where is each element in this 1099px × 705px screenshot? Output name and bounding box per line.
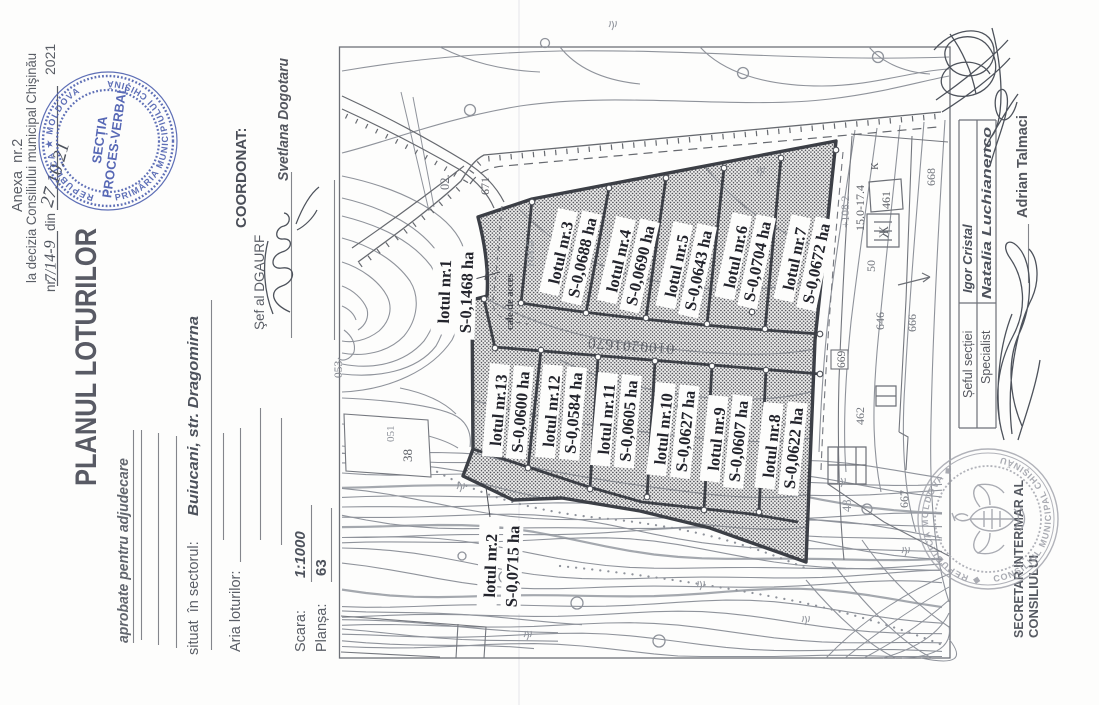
svg-text:Aria loturilor:: Aria loturilor: (228, 571, 244, 652)
svg-text:669: 669 (836, 351, 848, 369)
svg-text:671: 671 (478, 177, 492, 195)
svg-text:din: din (43, 213, 58, 231)
svg-text:К: К (869, 162, 881, 170)
svg-text:Specialist: Specialist (979, 330, 993, 384)
svg-text:02.: 02. (438, 174, 452, 190)
svg-text:667: 667 (897, 490, 911, 508)
svg-text:PLANUL LOTURILOR: PLANUL LOTURILOR (70, 228, 103, 486)
svg-text:053: 053 (333, 361, 345, 379)
svg-text:Igor Cristal: Igor Cristal (960, 224, 975, 293)
svg-text:S-0,0715 ha: S-0,0715 ha (502, 525, 524, 607)
svg-text:situat în sectorul:: situat în sectorul: (186, 541, 202, 655)
svg-text:38: 38 (400, 449, 415, 462)
svg-text:S-0,1468 ha: S-0,1468 ha (456, 251, 478, 333)
svg-text:461: 461 (879, 191, 893, 209)
svg-text:+108.2: +108.2 (840, 195, 852, 228)
svg-text:Adrian Talmaci: Adrian Talmaci (1015, 115, 1031, 218)
svg-text:668: 668 (924, 168, 938, 186)
svg-text:lotul nr.2: lotul nr.2 (480, 534, 501, 598)
svg-text:15.0-17.4: 15.0-17.4 (853, 185, 867, 231)
svg-text:104.6: 104.6 (523, 241, 537, 268)
svg-text:la decizia Consiliului municip: la decizia Consiliului municipal Chişină… (23, 53, 39, 283)
svg-text:63: 63 (313, 559, 330, 576)
svg-text:cale de acces: cale de acces (505, 273, 516, 330)
svg-text:Ж: Ж (876, 226, 891, 238)
svg-text:051: 051 (385, 426, 397, 443)
svg-text:Șeful secției: Șeful secției (961, 331, 975, 398)
svg-text:aprobate pentru adjudecare: aprobate pentru adjudecare (116, 458, 132, 643)
svg-text:Buiucani, str. Dragomirna: Buiucani, str. Dragomirna (185, 316, 202, 516)
svg-text:Scara:: Scara: (293, 610, 309, 652)
svg-text:lotul nr.1: lotul nr.1 (434, 260, 455, 324)
svg-text:Natalia Luchianenco: Natalia Luchianenco (980, 126, 994, 299)
svg-text:646: 646 (873, 312, 887, 330)
svg-text:50: 50 (864, 260, 878, 272)
svg-text:Svetlana Dogotaru: Svetlana Dogotaru (275, 58, 292, 181)
svg-text:48: 48 (840, 500, 854, 513)
svg-text:Planșa:: Planșa: (314, 604, 330, 652)
svg-text:462: 462 (853, 407, 867, 425)
svg-text:COORDONAT:: COORDONAT: (233, 127, 250, 228)
svg-text:2021: 2021 (42, 44, 58, 75)
svg-text:666: 666 (905, 314, 919, 332)
svg-text:1:1000: 1:1000 (292, 531, 309, 578)
